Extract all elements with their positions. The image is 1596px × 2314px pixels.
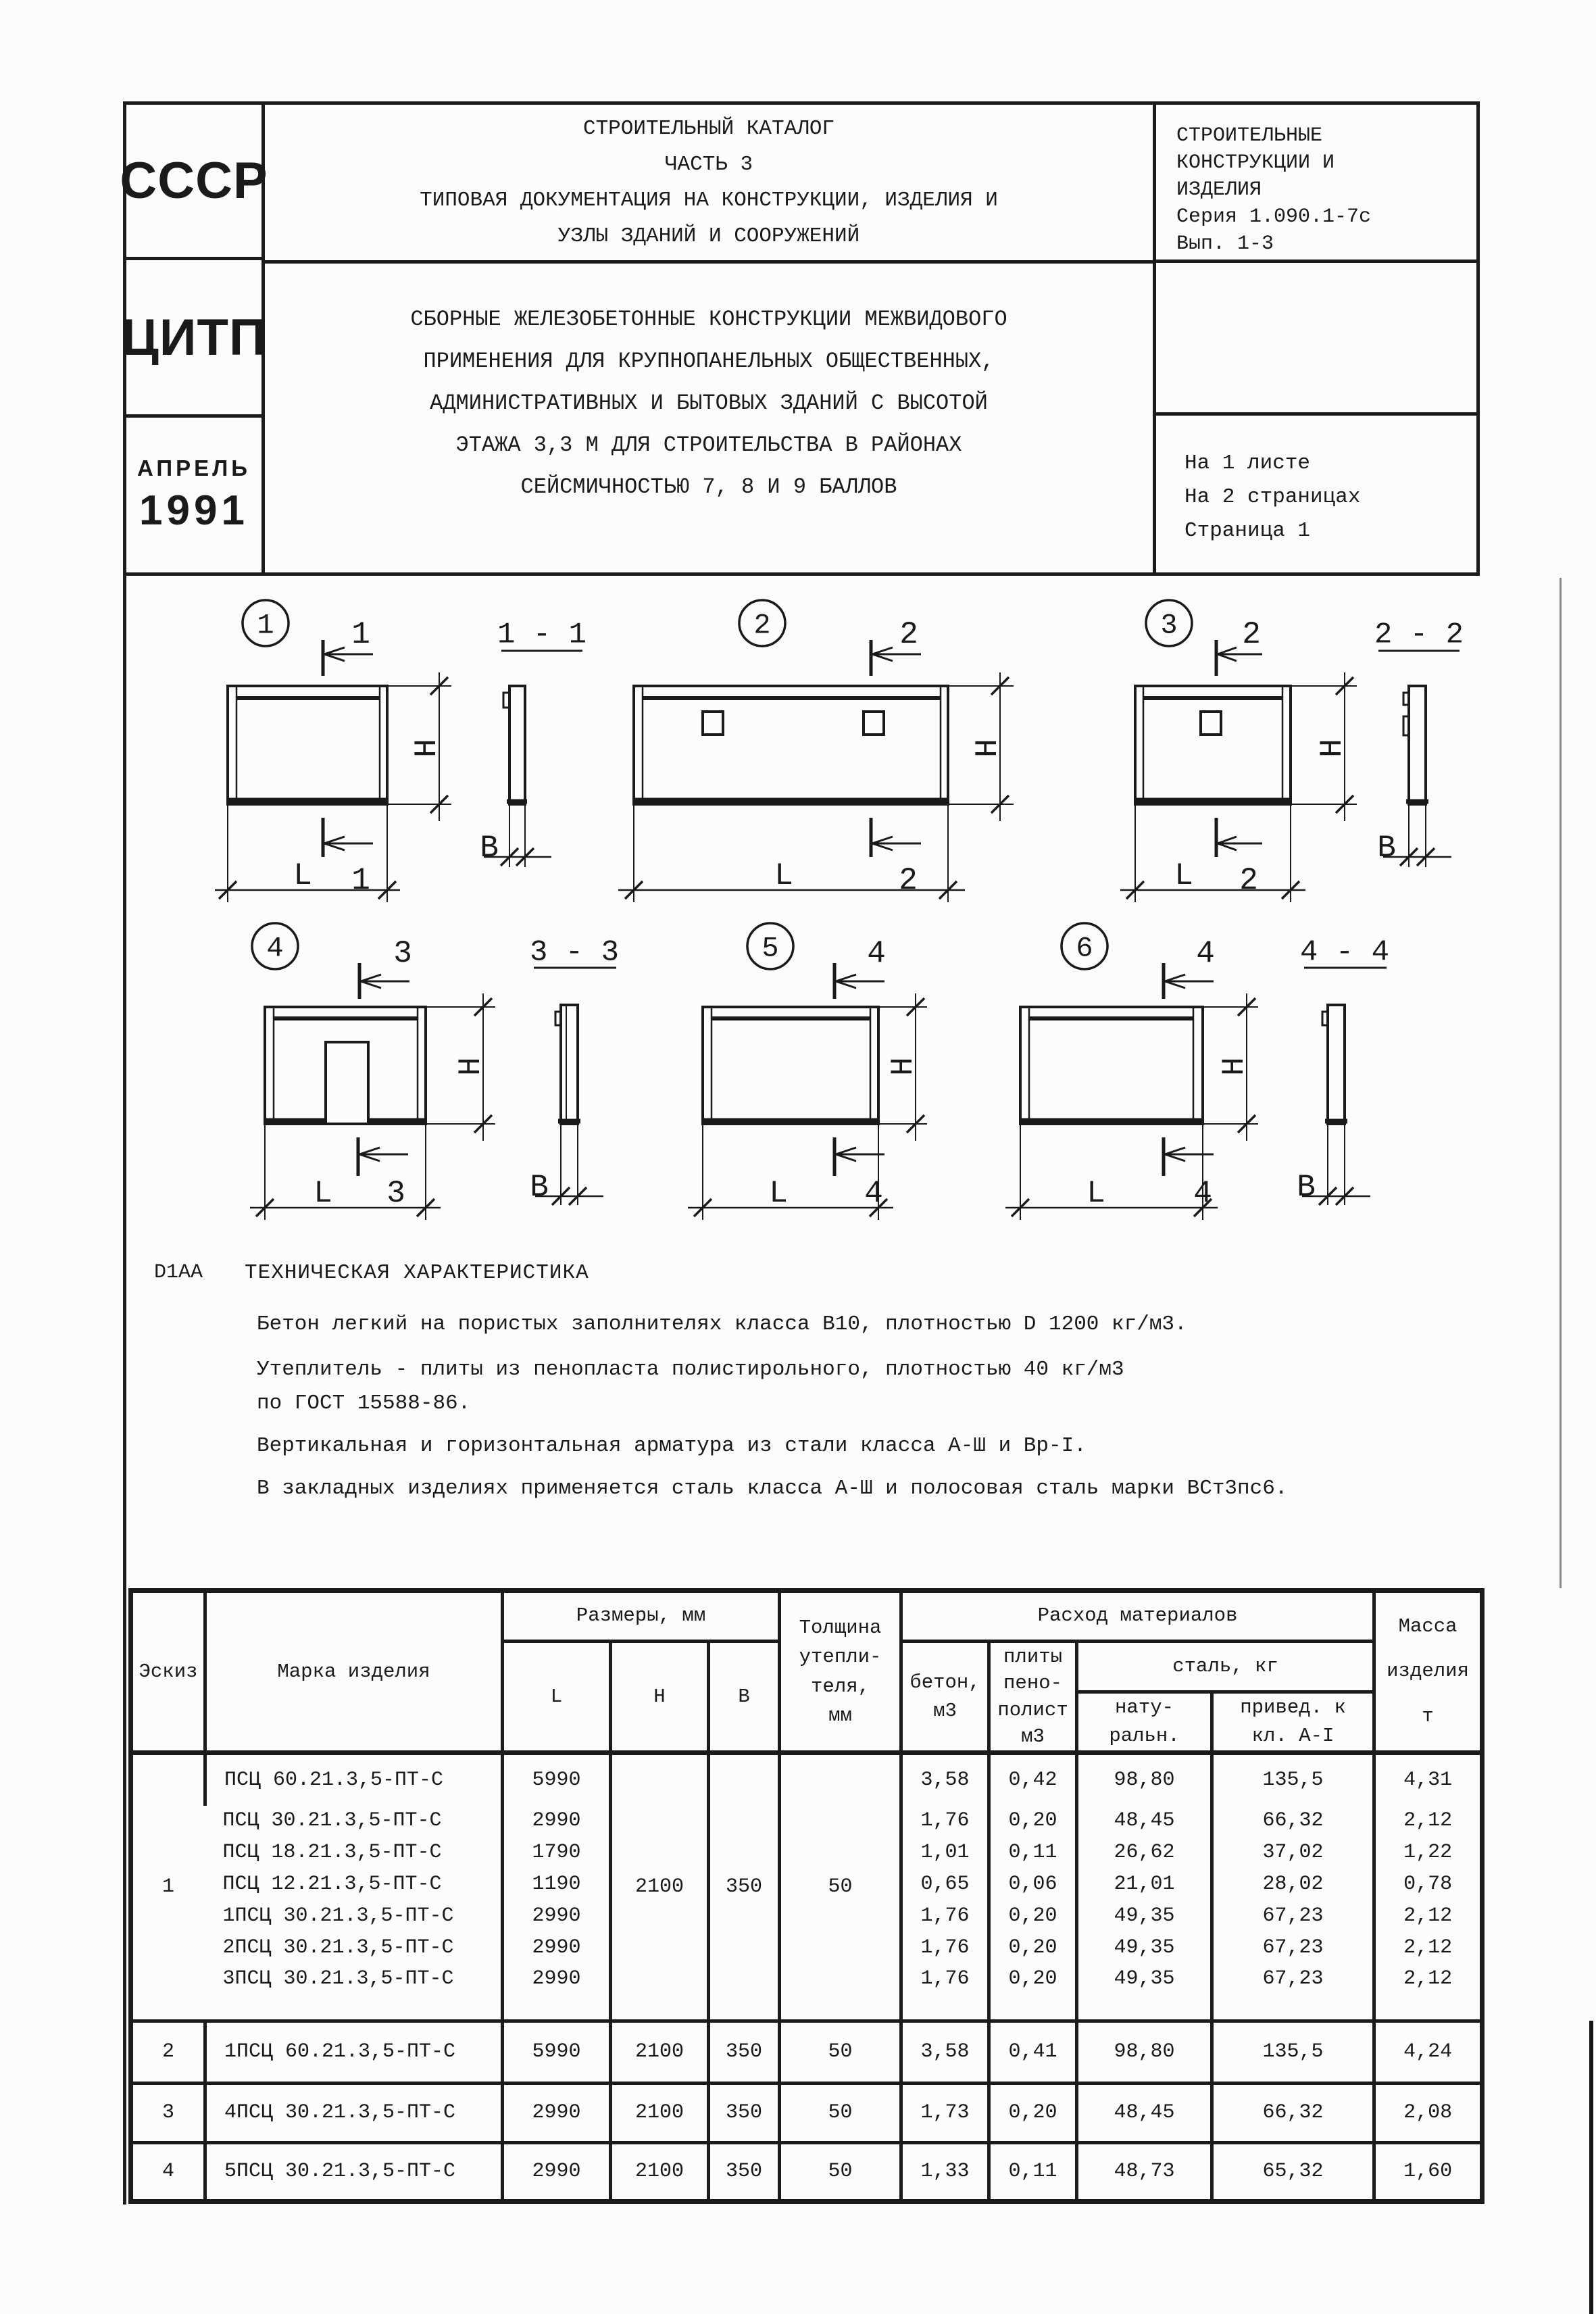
cell-l: 1790	[503, 1838, 611, 1869]
col-header-materials-group: Расход материалов	[901, 1591, 1374, 1642]
cut-label-top: 4	[1196, 936, 1215, 971]
concrete-line: бетон,	[903, 1669, 987, 1697]
cell-mass: 1,22	[1374, 1838, 1482, 1869]
section-strip	[561, 1005, 578, 1124]
subject-line5: СЕЙСМИЧНОСТЬЮ 7, 8 И 9 БАЛЛОВ	[521, 466, 897, 508]
dim-length-label: L	[1087, 1176, 1105, 1211]
concrete-line: м3	[903, 1697, 987, 1725]
series-line3: ИЗДЕЛИЯ	[1176, 176, 1476, 203]
tech-paragraph-1: Бетон легкий на пористых заполнителях кл…	[257, 1312, 1187, 1336]
cell-l: 2990	[503, 1806, 611, 1838]
steel-natural-line: ральн.	[1078, 1722, 1210, 1750]
col-header-mass: Масса изделия т	[1374, 1591, 1482, 1753]
cell-steel-red: 67,23	[1212, 1933, 1374, 1965]
dim-height: H	[426, 993, 495, 1141]
panel-edge-lines	[1143, 686, 1282, 804]
dim-length-label: L	[314, 1176, 332, 1211]
col-header-mark: Марка изделия	[205, 1591, 503, 1753]
dim-length: L	[688, 1124, 893, 1220]
section-4-4: 4 - 4 B	[1297, 935, 1389, 1205]
cell-l: 1190	[503, 1869, 611, 1901]
mass-line: Масса	[1376, 1604, 1480, 1650]
cut-arrow-bottom	[1218, 837, 1262, 850]
section-strip	[1328, 1005, 1345, 1124]
cell-steel-red: 65,32	[1212, 2143, 1374, 2202]
mass-line: изделия	[1376, 1649, 1480, 1694]
table-row: 3 4ПСЦ 30.21.3,5-ПТ-С 2990 2100 350 50 1…	[131, 2084, 1482, 2143]
dim-width-label: B	[530, 1170, 549, 1205]
cell-concrete: 3,58	[901, 1753, 989, 1806]
cell-mass: 2,12	[1374, 1806, 1482, 1838]
cell-mark: 3ПСЦ 30.21.3,5-ПТ-С	[205, 1965, 503, 2021]
cell-sketch-no: 2	[131, 2021, 205, 2084]
tech-paragraph-4: В закладных изделиях применяется сталь к…	[257, 1477, 1287, 1500]
cut-label-top: 4	[867, 936, 886, 971]
stamp-org-box: ЦИТП	[123, 257, 265, 418]
section-strip	[509, 686, 525, 804]
cell-steel-nat: 48,45	[1077, 2084, 1212, 2143]
dim-width: B	[480, 804, 551, 867]
dim-width-label: B	[480, 831, 499, 866]
cut-arrow-bottom	[1165, 1148, 1214, 1161]
cell-l: 2990	[503, 1901, 611, 1933]
panel-outline	[703, 1007, 878, 1124]
dim-width-label: B	[1297, 1170, 1316, 1205]
sketch-2: 2 2 H 2 L	[618, 600, 1014, 902]
cell-mass: 4,24	[1374, 2021, 1482, 2084]
cell-concrete: 1,73	[901, 2084, 989, 2143]
cell-l: 2990	[503, 2143, 611, 2202]
cell-steel-nat: 98,80	[1077, 2021, 1212, 2084]
col-header-foam: плиты пено- полист м3	[989, 1642, 1077, 1753]
cell-concrete: 1,76	[901, 1965, 989, 2021]
cell-l: 5990	[503, 1753, 611, 1806]
cell-l: 2990	[503, 1965, 611, 2021]
dim-length-label: L	[769, 1176, 788, 1211]
cell-mark: ПСЦ 30.21.3,5-ПТ-С	[205, 1806, 503, 1838]
cell-concrete: 1,76	[901, 1933, 989, 1965]
panel-drawings: 1 1 H 1 L 1	[0, 578, 1596, 1267]
cell-foam: 0,20	[989, 2084, 1077, 2143]
dim-height-label: H	[453, 1057, 489, 1076]
cell-foam: 0,42	[989, 1753, 1077, 1806]
cell-steel-red: 135,5	[1212, 2021, 1374, 2084]
cell-b: 350	[709, 1753, 780, 2021]
tech-paragraph-3: Вертикальная и горизонтальная арматура и…	[257, 1434, 1087, 1458]
cut-label-bottom: 2	[1239, 863, 1258, 898]
cut-arrow-bottom	[324, 837, 373, 850]
cell-l: 2990	[503, 2084, 611, 2143]
cell-steel-red: 37,02	[1212, 1838, 1374, 1869]
sketch-1-number: 1	[257, 610, 274, 642]
panel-outline	[1020, 1007, 1203, 1124]
section-3-3-title: 3 - 3	[530, 935, 619, 969]
cell-h: 2100	[611, 2084, 709, 2143]
col-header-dim-l: L	[503, 1642, 611, 1753]
panel-doorway-notch	[326, 1042, 368, 1124]
cell-mass: 2,12	[1374, 1901, 1482, 1933]
panel-edge-lines	[643, 686, 941, 804]
catalog-sheet-page: СССР ЦИТП АПРЕЛЬ 1991 СТРОИТЕЛЬНЫЙ КАТАЛ…	[0, 0, 1596, 2314]
col-header-insulation: Толщина утепли- теля, мм	[780, 1591, 901, 1753]
spec-table-header: Эскиз Марка изделия Размеры, мм Толщина …	[131, 1591, 1482, 1753]
panel-outline	[228, 686, 387, 804]
cell-foam: 0,06	[989, 1869, 1077, 1901]
sheet-info-line3: Страница 1	[1184, 514, 1476, 548]
cell-mass: 2,08	[1374, 2084, 1482, 2143]
dim-height: H	[1203, 993, 1258, 1141]
cut-label-top: 2	[1242, 617, 1261, 652]
cell-foam: 0,41	[989, 2021, 1077, 2084]
sketch-4: 4 3 H 3 L	[250, 923, 495, 1220]
cell-mark: ПСЦ 60.21.3,5-ПТ-С	[205, 1753, 503, 1806]
cell-foam: 0,20	[989, 1965, 1077, 2021]
col-header-steel-group: сталь, кг	[1077, 1642, 1374, 1692]
tech-heading: ТЕХНИЧЕСКАЯ ХАРАКТЕРИСТИКА	[245, 1261, 589, 1285]
cell-concrete: 0,65	[901, 1869, 989, 1901]
cell-steel-red: 135,5	[1212, 1753, 1374, 1806]
cell-b: 350	[709, 2084, 780, 2143]
panel-outline	[1135, 686, 1291, 804]
cell-steel-nat: 49,35	[1077, 1933, 1212, 1965]
dim-width-label: B	[1377, 831, 1396, 866]
section-1-1-title: 1 - 1	[497, 618, 587, 651]
table-row: 1 ПСЦ 60.21.3,5-ПТ-С 5990 2100 350 50 3,…	[131, 1753, 1482, 1806]
panel-outline	[265, 1007, 426, 1124]
cell-b: 350	[709, 2021, 780, 2084]
cell-mark: 2ПСЦ 30.21.3,5-ПТ-С	[205, 1933, 503, 1965]
cut-label-bottom: 2	[899, 863, 918, 898]
sketch-2-number: 2	[753, 610, 770, 642]
doc-code: D1AA	[154, 1261, 203, 1284]
dim-height-label: H	[1217, 1057, 1252, 1076]
sheet-info-line1: На 1 листе	[1184, 447, 1476, 481]
col-header-dims-group: Размеры, мм	[503, 1591, 780, 1642]
section-1-1: 1 - 1 B	[480, 618, 587, 867]
dim-height-label: H	[409, 739, 445, 758]
dim-height-label: H	[970, 739, 1005, 758]
cell-steel-nat: 48,73	[1077, 2143, 1212, 2202]
section-2-2: 2 - 2 B	[1374, 618, 1464, 867]
cell-sketch-no: 3	[131, 2084, 205, 2143]
dim-height: H	[948, 672, 1014, 821]
subject-box: СБОРНЫЕ ЖЕЛЕЗОБЕТОННЫЕ КОНСТРУКЦИИ МЕЖВИ…	[261, 260, 1156, 576]
mass-line: т	[1376, 1694, 1480, 1740]
cut-label-top: 2	[899, 617, 918, 652]
cell-foam: 0,11	[989, 1838, 1077, 1869]
subject-line2: ПРИМЕНЕНИЯ ДЛЯ КРУПНОПАНЕЛЬНЫХ ОБЩЕСТВЕН…	[424, 341, 995, 383]
col-header-dim-b: B	[709, 1642, 780, 1753]
dim-length-label: L	[293, 858, 312, 893]
series-line2: КОНСТРУКЦИИ И	[1176, 149, 1476, 176]
dim-height-label: H	[886, 1057, 921, 1076]
cell-h: 2100	[611, 2021, 709, 2084]
panel-opening-2	[864, 712, 884, 735]
series-box: СТРОИТЕЛЬНЫЕ КОНСТРУКЦИИ И ИЗДЕЛИЯ Серия…	[1153, 101, 1480, 263]
steel-natural-line: нату-	[1078, 1694, 1210, 1722]
cell-steel-red: 67,23	[1212, 1965, 1374, 2021]
cell-concrete: 3,58	[901, 2021, 989, 2084]
cell-insulation: 50	[780, 1753, 901, 2021]
cell-foam: 0,20	[989, 1933, 1077, 1965]
section-2-2-title: 2 - 2	[1374, 618, 1464, 651]
subject-line1: СБОРНЫЕ ЖЕЛЕЗОБЕТОННЫЕ КОНСТРУКЦИИ МЕЖВИ…	[410, 299, 1007, 341]
cell-h: 2100	[611, 1753, 709, 2021]
dim-length: L	[215, 804, 400, 902]
cut-label-top: 3	[393, 936, 412, 971]
cell-mark: 5ПСЦ 30.21.3,5-ПТ-С	[205, 2143, 503, 2202]
cell-steel-red: 28,02	[1212, 1869, 1374, 1901]
panel-outline	[634, 686, 948, 804]
subject-line3: АДМИНИСТРАТИВНЫХ И БЫТОВЫХ ЗДАНИЙ С ВЫСО…	[430, 383, 988, 424]
spec-table: Эскиз Марка изделия Размеры, мм Толщина …	[128, 1588, 1485, 2204]
cell-foam: 0,20	[989, 1901, 1077, 1933]
stamp-org: ЦИТП	[121, 308, 266, 367]
dim-height-label: H	[1315, 739, 1350, 758]
cell-mark: 1ПСЦ 30.21.3,5-ПТ-С	[205, 1901, 503, 1933]
sketch-1: 1 1 H 1 L	[215, 600, 451, 902]
stamp-year: 1991	[139, 487, 249, 535]
sketch-5: 5 4 H 4 L	[688, 923, 927, 1220]
dim-width: B	[1377, 804, 1451, 867]
cell-foam: 0,20	[989, 1806, 1077, 1838]
sheet-info-line2: На 2 страницах	[1184, 481, 1476, 514]
cell-insulation: 50	[780, 2021, 901, 2084]
dim-length: L	[1120, 804, 1305, 902]
subject-line4: ЭТАЖА 3,3 М ДЛЯ СТРОИТЕЛЬСТВА В РАЙОНАХ	[456, 424, 962, 466]
sketch-3: 3 2 H 2 L	[1120, 600, 1357, 902]
dim-height: H	[387, 672, 451, 821]
panel-edge-lines	[1029, 1007, 1193, 1124]
cut-label-bottom: 3	[386, 1176, 405, 1211]
insulation-line: Толщина	[781, 1613, 899, 1643]
scan-artifact-edge	[1589, 2021, 1593, 2314]
cell-steel-nat: 26,62	[1077, 1838, 1212, 1869]
cell-mass: 0,78	[1374, 1869, 1482, 1901]
cell-sketch-no: 1	[131, 1753, 205, 2021]
col-header-concrete: бетон, м3	[901, 1642, 989, 1753]
cell-insulation: 50	[780, 2084, 901, 2143]
series-number: Серия 1.090.1-7с	[1176, 203, 1476, 230]
section-strip	[1409, 686, 1426, 804]
catalog-title-line1: СТРОИТЕЛЬНЫЙ КАТАЛОГ	[583, 111, 834, 147]
table-row: 2 1ПСЦ 60.21.3,5-ПТ-С 5990 2100 350 50 3…	[131, 2021, 1482, 2084]
steel-reduced-line: привед. к	[1214, 1694, 1372, 1722]
stamp-country-box: СССР	[123, 101, 265, 260]
cell-mass: 2,12	[1374, 1965, 1482, 2021]
series-line1: СТРОИТЕЛЬНЫЕ	[1176, 122, 1476, 149]
cell-steel-nat: 21,01	[1077, 1869, 1212, 1901]
insulation-line: теля,	[781, 1672, 899, 1702]
foam-line: полист	[991, 1697, 1075, 1723]
sketch-6-number: 6	[1076, 933, 1093, 965]
dim-length: L	[250, 1124, 441, 1220]
panel-edge-lines	[712, 1007, 870, 1124]
dim-width: B	[1297, 1124, 1370, 1205]
cut-arrow-top	[836, 975, 884, 988]
catalog-title-line4: УЗЛЫ ЗДАНИЙ И СООРУЖЕНИЙ	[558, 218, 859, 254]
cell-mark: ПСЦ 18.21.3,5-ПТ-С	[205, 1838, 503, 1869]
foam-line: пено-	[991, 1670, 1075, 1696]
section-3-3: 3 - 3 B	[530, 935, 619, 1205]
insulation-line: утепли-	[781, 1642, 899, 1672]
cell-foam: 0,11	[989, 2143, 1077, 2202]
cell-insulation: 50	[780, 2143, 901, 2202]
dim-width: B	[530, 1124, 603, 1205]
cell-mark: ПСЦ 12.21.3,5-ПТ-С	[205, 1869, 503, 1901]
stamp-country: СССР	[120, 151, 268, 210]
cut-label-top: 1	[351, 617, 370, 652]
catalog-title-line3: ТИПОВАЯ ДОКУМЕНТАЦИЯ НА КОНСТРУКЦИИ, ИЗД…	[420, 182, 998, 218]
dim-length-label: L	[774, 858, 793, 893]
cut-arrow-top	[361, 975, 409, 988]
cell-l: 2990	[503, 1933, 611, 1965]
cell-mark: 1ПСЦ 60.21.3,5-ПТ-С	[205, 2021, 503, 2084]
col-header-sketch: Эскиз	[131, 1591, 205, 1753]
stamp-month: АПРЕЛЬ	[137, 456, 251, 481]
section-4-4-title: 4 - 4	[1300, 935, 1389, 969]
cell-h: 2100	[611, 2143, 709, 2202]
foam-line: м3	[991, 1723, 1075, 1750]
dim-length-label: L	[1174, 858, 1193, 893]
cell-steel-nat: 49,35	[1077, 1965, 1212, 2021]
cell-mass: 4,31	[1374, 1753, 1482, 1806]
cut-arrow-bottom	[359, 1148, 408, 1161]
cell-steel-red: 66,32	[1212, 2084, 1374, 2143]
sketch-5-number: 5	[762, 933, 778, 965]
cell-sketch-no: 4	[131, 2143, 205, 2202]
cut-label-bottom: 1	[351, 863, 370, 898]
sketch-4-number: 4	[266, 933, 283, 965]
cell-b: 350	[709, 2143, 780, 2202]
steel-reduced-line: кл. А-I	[1214, 1722, 1372, 1750]
table-row: 4 5ПСЦ 30.21.3,5-ПТ-С 2990 2100 350 50 1…	[131, 2143, 1482, 2202]
cut-arrow-top	[1165, 975, 1214, 988]
cell-mass: 1,60	[1374, 2143, 1482, 2202]
panel-edge-lines	[236, 686, 380, 804]
cell-steel-nat: 98,80	[1077, 1753, 1212, 1806]
cell-steel-red: 66,32	[1212, 1806, 1374, 1838]
cell-concrete: 1,76	[901, 1901, 989, 1933]
cell-mass: 2,12	[1374, 1933, 1482, 1965]
header-empty-box	[1153, 260, 1480, 416]
cell-mark: 4ПСЦ 30.21.3,5-ПТ-С	[205, 2084, 503, 2143]
panel-opening-1	[703, 712, 723, 735]
insulation-line: мм	[781, 1701, 899, 1731]
cut-arrow-bottom	[872, 837, 921, 850]
cut-arrow-bottom	[836, 1148, 884, 1161]
col-header-dim-h: H	[611, 1642, 709, 1753]
series-issue: Вып. 1-3	[1176, 230, 1476, 257]
col-header-steel-natural: нату- ральн.	[1077, 1692, 1212, 1753]
panel-edge-lines	[274, 1007, 418, 1124]
dim-length: L	[1005, 1124, 1218, 1220]
cell-concrete: 1,33	[901, 2143, 989, 2202]
panel-opening-1	[1201, 712, 1221, 735]
sketch-6: 6 4 H 4 L	[1005, 923, 1258, 1220]
col-header-steel-reduced: привед. к кл. А-I	[1212, 1692, 1374, 1753]
tech-paragraph-2b: по ГОСТ 15588-86.	[257, 1392, 470, 1415]
sketch-3-number: 3	[1160, 610, 1177, 642]
catalog-title-box: СТРОИТЕЛЬНЫЙ КАТАЛОГ ЧАСТЬ 3 ТИПОВАЯ ДОК…	[261, 101, 1156, 264]
catalog-title-line2: ЧАСТЬ 3	[665, 147, 753, 182]
dim-height: H	[1291, 672, 1357, 821]
cell-steel-nat: 48,45	[1077, 1806, 1212, 1838]
cell-concrete: 1,01	[901, 1838, 989, 1869]
tech-paragraph-2: Утеплитель - плиты из пенопласта полисти…	[257, 1358, 1124, 1381]
cell-concrete: 1,76	[901, 1806, 989, 1838]
dim-height: H	[878, 993, 927, 1141]
sheet-info-box: На 1 листе На 2 страницах Страница 1	[1153, 412, 1480, 576]
cell-steel-nat: 49,35	[1077, 1901, 1212, 1933]
stamp-date-box: АПРЕЛЬ 1991	[123, 414, 265, 576]
foam-line: плиты	[991, 1644, 1075, 1670]
cell-steel-red: 67,23	[1212, 1901, 1374, 1933]
cell-l: 5990	[503, 2021, 611, 2084]
